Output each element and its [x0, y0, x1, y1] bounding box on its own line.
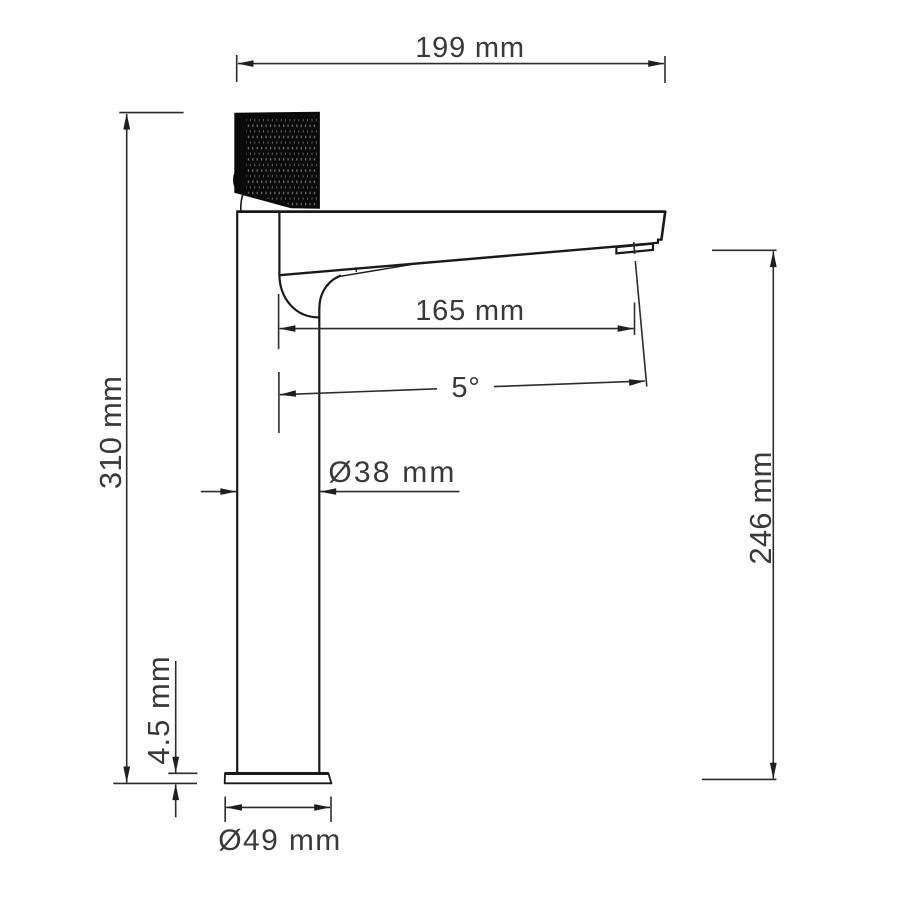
svg-text:310 mm: 310 mm	[93, 376, 128, 489]
svg-text:Ø49 mm: Ø49 mm	[218, 824, 341, 857]
svg-text:165 mm: 165 mm	[415, 295, 525, 327]
svg-text:Ø38 mm: Ø38 mm	[328, 456, 456, 489]
svg-text:246 mm: 246 mm	[743, 451, 778, 564]
svg-text:4.5 mm: 4.5 mm	[141, 655, 176, 764]
svg-text:5°: 5°	[451, 372, 480, 404]
svg-text:199 mm: 199 mm	[415, 32, 525, 64]
